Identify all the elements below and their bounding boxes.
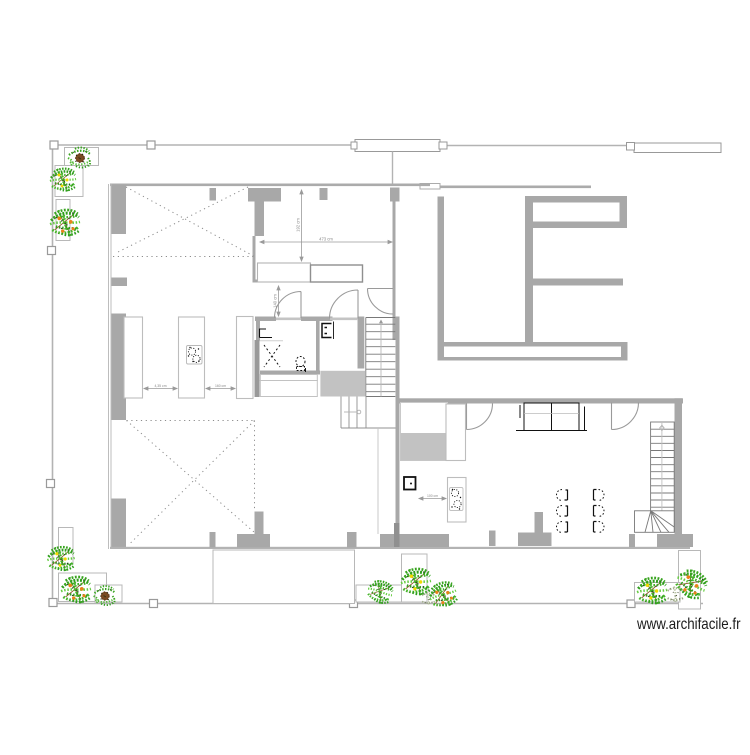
svg-text:www.archifacile.fr: www.archifacile.fr: [636, 616, 741, 633]
svg-text:192 cm: 192 cm: [296, 218, 301, 232]
svg-text:100 cm: 100 cm: [427, 494, 438, 498]
svg-text:160 cm: 160 cm: [215, 384, 226, 388]
svg-text:4,35 cm: 4,35 cm: [154, 384, 166, 388]
svg-text:140 cm: 140 cm: [273, 294, 278, 308]
svg-text:473 cm: 473 cm: [319, 237, 333, 242]
